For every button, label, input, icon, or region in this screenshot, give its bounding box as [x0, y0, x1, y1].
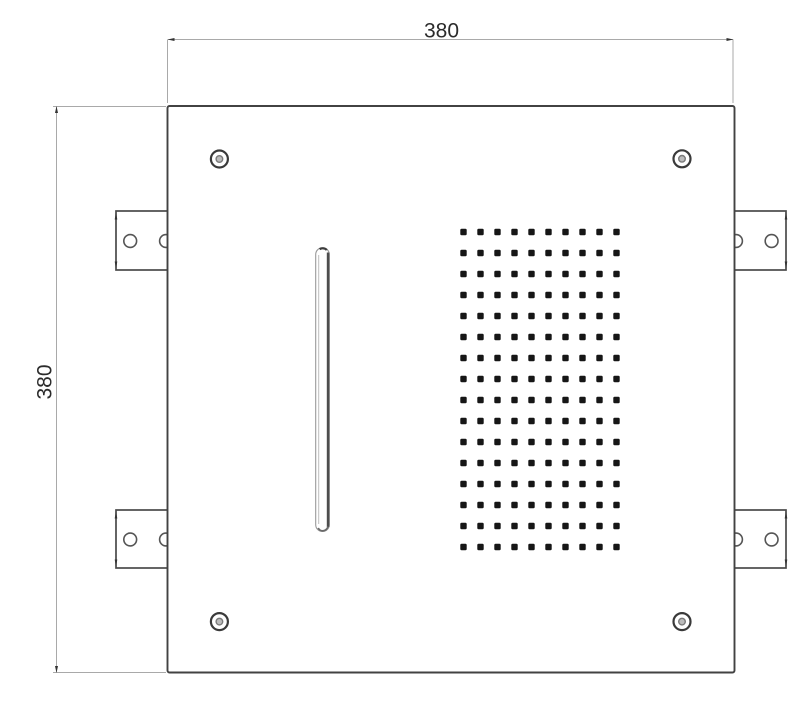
svg-text:380: 380 [34, 364, 57, 399]
svg-text:380: 380 [424, 19, 459, 42]
